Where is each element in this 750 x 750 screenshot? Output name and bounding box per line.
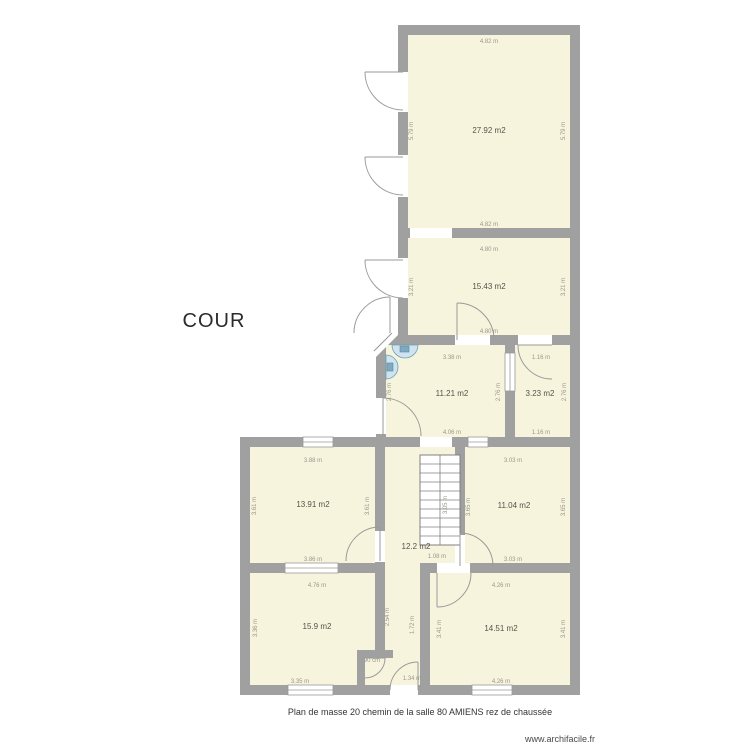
passage-27-15 xyxy=(410,228,452,238)
dim-label: 90 cm xyxy=(364,658,380,664)
dim-label: 4.26 m xyxy=(492,583,510,589)
archifacile-credit: www.archifacile.fr xyxy=(524,734,595,744)
room-label-12-2: 12.2 m2 xyxy=(402,542,431,551)
window-1391-top xyxy=(303,437,333,447)
wall-left-1451 xyxy=(420,563,430,685)
door-gap-1451 xyxy=(437,563,470,573)
room-label-14-51: 14.51 m2 xyxy=(484,624,518,633)
dim-label: 3.35 m xyxy=(291,679,309,685)
dim-label: 3.21 m xyxy=(561,278,567,296)
dim-label: 3.03 m xyxy=(504,557,522,563)
room-label-27-92: 27.92 m2 xyxy=(472,126,506,135)
dim-label: 1.08 m xyxy=(428,554,446,560)
door-gap-ext-3 xyxy=(398,258,408,298)
stairs xyxy=(420,455,460,545)
floor-plan: 27.92 m2 15.43 m2 11.21 m2 3.23 m2 13.91… xyxy=(0,0,750,750)
door-ext-1 xyxy=(365,72,403,110)
plan-caption: Plan de masse 20 chemin de la salle 80 A… xyxy=(288,707,552,717)
dim-label: 3.86 m xyxy=(304,557,322,563)
room-label-15-9: 15.9 m2 xyxy=(303,622,332,631)
dim-label: 3.38 m xyxy=(443,355,461,361)
room-label-11-21: 11.21 m2 xyxy=(436,389,469,398)
dim-label: 3.36 m xyxy=(253,619,259,637)
dim-label: 3.88 m xyxy=(304,458,322,464)
dim-label: 3.41 m xyxy=(561,620,567,638)
door-gap-15-entree xyxy=(455,335,490,345)
wing-top xyxy=(398,25,580,345)
dim-label: 3.05 m xyxy=(443,496,449,514)
dim-label: 1.72 m xyxy=(410,616,416,634)
room-label-13-91: 13.91 m2 xyxy=(296,500,330,509)
window-1391-159 xyxy=(285,563,338,573)
dim-label: 4.06 m xyxy=(443,430,461,436)
dim-label: 5.79 m xyxy=(409,122,415,140)
dim-label: 3.61 m xyxy=(252,497,258,515)
wall-top-lower-block xyxy=(240,437,580,447)
dim-label: 2.54 m xyxy=(385,608,391,626)
door-gap-ext-1 xyxy=(398,72,408,112)
dim-label: 2.76 m xyxy=(387,383,393,401)
dim-label: 3.65 m xyxy=(561,498,567,516)
room-label-11-04: 11.04 m2 xyxy=(498,501,531,510)
dim-label: 3.41 m xyxy=(437,620,443,638)
dim-label: 1.34 m xyxy=(403,676,421,682)
dim-label: 2.76 m xyxy=(496,383,502,401)
dim-label: 2.76 m xyxy=(562,383,568,401)
wall-stub-vestibule-v xyxy=(357,650,365,685)
dim-label: 3.65 m xyxy=(466,498,472,516)
window-1451-bottom xyxy=(472,685,512,695)
door-gap-wc xyxy=(518,335,552,345)
dim-label: 3.61 m xyxy=(365,497,371,515)
door-ext-2 xyxy=(365,157,403,195)
window-1104-top xyxy=(468,437,488,447)
door-gap-ext-2 xyxy=(398,155,408,197)
wall-right xyxy=(570,25,580,695)
cour-label: COUR xyxy=(183,310,246,332)
dim-label: 5.79 m xyxy=(561,122,567,140)
room-label-15-43: 15.43 m2 xyxy=(472,282,506,291)
window-159-bottom xyxy=(288,685,333,695)
room-label-3-23: 3.23 m2 xyxy=(526,389,555,398)
door-ext-3 xyxy=(365,260,403,298)
dim-label: 1.16 m xyxy=(532,355,550,361)
window-entree-wc xyxy=(505,353,515,391)
wall-top xyxy=(398,25,580,35)
dim-label: 4.26 m xyxy=(492,679,510,685)
passage-entree-hall xyxy=(420,437,452,447)
dim-label: 4.76 m xyxy=(308,583,326,589)
door-gap-entrance-bottom xyxy=(390,685,418,695)
dim-label: 4.80 m xyxy=(480,329,498,335)
dim-label: 4.80 m xyxy=(480,247,498,253)
dim-label: 3.03 m xyxy=(504,458,522,464)
dim-label: 4.82 m xyxy=(480,222,498,228)
dim-label: 1.16 m xyxy=(532,430,550,436)
door-gap-entree-left xyxy=(376,398,386,434)
dim-label: 3.21 m xyxy=(409,278,415,296)
dim-label: 4.82 m xyxy=(480,39,498,45)
